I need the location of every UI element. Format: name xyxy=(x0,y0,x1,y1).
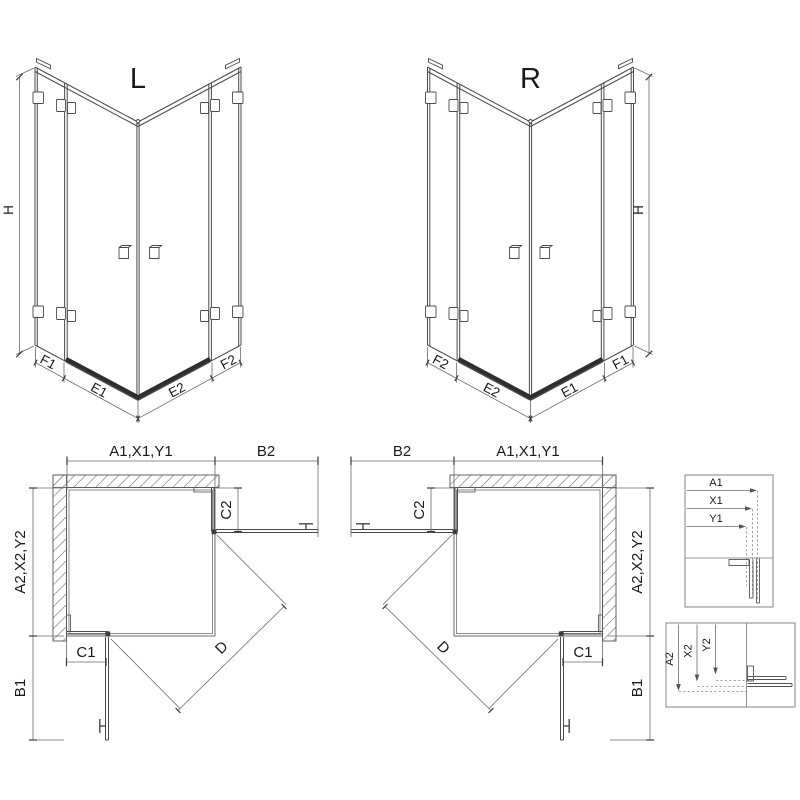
shower-enclosure-drawing: L H F1 E1 E2 F2 xyxy=(0,0,800,800)
door-hinge xyxy=(201,311,209,322)
detail-box-bottom: A2 X2 Y2 xyxy=(664,623,795,707)
door-hinge xyxy=(603,308,612,320)
door-handle xyxy=(356,524,569,733)
door-hinge xyxy=(460,311,468,322)
dim-label-c1: C1 xyxy=(76,644,95,661)
detail-label-a2: A2 xyxy=(664,652,676,665)
dim-label-height: H xyxy=(1,205,16,215)
dim-label-b1: B1 xyxy=(629,679,646,697)
door-hinge xyxy=(460,103,468,114)
detail-label-y1: Y1 xyxy=(709,513,722,525)
wall-profile-cap xyxy=(619,59,633,69)
tray-outline xyxy=(67,488,216,637)
door-hinge xyxy=(593,103,601,114)
dim-label-a2x2y2: A2,X2,Y2 xyxy=(12,530,29,593)
hinge-point xyxy=(212,530,216,534)
door-hinge xyxy=(68,311,76,322)
dim-label-c2: C2 xyxy=(411,500,428,519)
door-hinge xyxy=(57,308,66,320)
door-handle xyxy=(100,524,313,733)
detail-label-a1: A1 xyxy=(709,477,722,489)
door-hinge xyxy=(211,308,220,320)
dim-label-f2: F2 xyxy=(218,352,239,373)
dim-label-height: H xyxy=(631,205,646,215)
tray-outline xyxy=(454,488,603,637)
wall-section-right xyxy=(603,475,617,641)
dim-label-a2x2y2: A2,X2,Y2 xyxy=(629,530,646,593)
wall-bracket xyxy=(426,92,437,104)
dim-label-c1: C1 xyxy=(573,644,592,661)
detail-label-y2: Y2 xyxy=(701,638,713,651)
wall-profile-cap xyxy=(429,59,443,69)
door-hinge xyxy=(201,103,209,114)
wall-bracket xyxy=(233,306,244,318)
technical-drawing-page: L H F1 E1 E2 F2 xyxy=(0,0,800,800)
door-hinge xyxy=(449,100,458,112)
door-hinge xyxy=(593,311,601,322)
iso-left-frame xyxy=(35,67,241,400)
dim-label-b1: B1 xyxy=(12,679,29,697)
wall-profile-cap xyxy=(37,59,51,69)
hinge-point xyxy=(453,530,457,534)
wall-section-top xyxy=(450,475,616,488)
iso-right-view: R H F2 E2 E1 F1 xyxy=(426,59,653,424)
iso-left-view: L H F1 E1 E2 F2 xyxy=(1,59,243,424)
wall-bracket xyxy=(233,92,244,104)
dim-label-d: D xyxy=(212,638,232,658)
dim-label-a1x1y1: A1,X1,Y1 xyxy=(109,443,172,460)
dim-label-b2: B2 xyxy=(393,443,411,460)
door-hinge xyxy=(57,100,66,112)
wall-bracket xyxy=(33,92,44,104)
dim-label-c2: C2 xyxy=(218,500,235,519)
plan-left-dimensions xyxy=(29,456,318,740)
wall-bracket xyxy=(426,306,437,318)
plan-right-view: A1,X1,Y1 B2 A2,X2,Y2 B1 C2 C1 D xyxy=(351,443,654,740)
view-title-left: L xyxy=(130,63,146,95)
detail-label-x2: X2 xyxy=(683,644,695,657)
dim-label-f1: F1 xyxy=(38,352,59,373)
dim-label-f1: F1 xyxy=(610,352,631,373)
door-hinge xyxy=(68,103,76,114)
wall-section-left xyxy=(53,475,67,641)
plan-left-view: A1,X1,Y1 B2 A2,X2,Y2 B1 C2 C1 D xyxy=(12,443,318,740)
detail-box-top: A1 X1 Y1 xyxy=(685,475,773,607)
dim-label-d: D xyxy=(433,638,453,658)
view-title-right: R xyxy=(520,63,541,95)
door-hinge xyxy=(211,100,220,112)
door-hinge xyxy=(449,308,458,320)
door-handle xyxy=(510,246,522,259)
glass-panels xyxy=(67,488,319,740)
wall-bracket xyxy=(625,306,636,318)
wall-section-top xyxy=(53,475,219,488)
dim-label-a1x1y1: A1,X1,Y1 xyxy=(496,443,559,460)
detail-label-x1: X1 xyxy=(709,495,722,507)
hinge-point xyxy=(106,632,110,636)
wall-bracket xyxy=(625,92,636,104)
door-handle xyxy=(150,246,162,259)
glass-panels xyxy=(351,488,603,740)
door-handle xyxy=(119,246,131,259)
dim-label-b2: B2 xyxy=(257,443,275,460)
dim-label-f2: F2 xyxy=(430,352,451,373)
door-hinge xyxy=(603,100,612,112)
wall-profile-cap xyxy=(226,59,240,69)
wall-bracket xyxy=(33,306,44,318)
hinge-point xyxy=(559,632,563,636)
iso-right-frame xyxy=(428,67,634,400)
door-handle xyxy=(540,246,552,259)
detail-frame xyxy=(666,623,795,707)
